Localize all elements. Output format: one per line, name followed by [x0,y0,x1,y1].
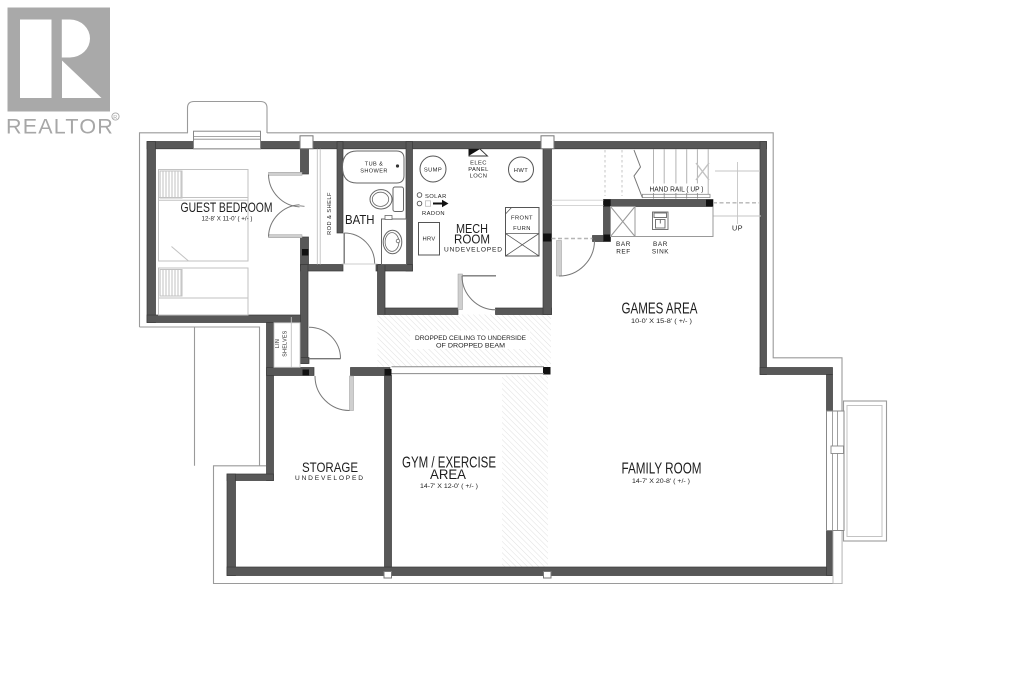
svg-text:PANEL: PANEL [468,167,489,173]
svg-text:HWT: HWT [514,168,528,174]
svg-text:HRV: HRV [422,237,435,243]
svg-text:LOCN: LOCN [470,174,488,180]
svg-text:UP: UP [732,224,743,233]
svg-text:FURN: FURN [513,226,531,232]
svg-text:ELEC: ELEC [470,161,487,167]
svg-text:GUEST BEDROOM: GUEST BEDROOM [181,199,273,215]
svg-text:REALTOR: REALTOR [6,115,114,139]
svg-text:ROOM: ROOM [454,232,490,247]
svg-text:UNDEVELOPED: UNDEVELOPED [444,247,502,254]
svg-text:SHELVES: SHELVES [283,330,289,356]
svg-text:HAND RAIL ( UP ): HAND RAIL ( UP ) [650,186,704,193]
svg-text:SINK: SINK [652,249,669,256]
svg-text:REF: REF [616,249,631,256]
svg-text:DROPPED CEILING TO UNDERSIDE: DROPPED CEILING TO UNDERSIDE [415,335,526,342]
svg-text:UNDEVELOPED: UNDEVELOPED [295,475,363,482]
svg-text:STORAGE: STORAGE [302,459,358,475]
svg-text:FRONT: FRONT [511,216,533,222]
svg-text:OF DROPPED BEAM: OF DROPPED BEAM [436,343,505,350]
svg-text:14-7' X 20-8' ( +/- ): 14-7' X 20-8' ( +/- ) [632,478,690,485]
svg-text:SUMP: SUMP [424,168,442,174]
svg-text:12-8' X 11-0' ( +/- ): 12-8' X 11-0' ( +/- ) [202,216,253,223]
svg-text:LIN: LIN [275,339,281,348]
svg-text:BATH: BATH [345,212,375,227]
svg-text:SHOWER: SHOWER [360,169,388,175]
svg-text:TUB &: TUB & [365,162,383,168]
svg-text:GAMES AREA: GAMES AREA [622,301,698,318]
svg-text:FAMILY ROOM: FAMILY ROOM [622,461,702,478]
svg-text:14-7' X 12-0' ( +/- ): 14-7' X 12-0' ( +/- ) [420,483,478,490]
svg-text:BAR: BAR [653,241,668,248]
svg-text:SOLAR: SOLAR [425,194,447,200]
svg-text:ROD & SHELF: ROD & SHELF [327,192,333,235]
svg-text:AREA: AREA [430,466,467,482]
svg-text:R: R [113,115,117,121]
svg-text:RADON: RADON [422,211,445,217]
svg-text:10-0' X 15-8' ( +/- ): 10-0' X 15-8' ( +/- ) [631,318,692,325]
svg-text:BAR: BAR [616,241,631,248]
